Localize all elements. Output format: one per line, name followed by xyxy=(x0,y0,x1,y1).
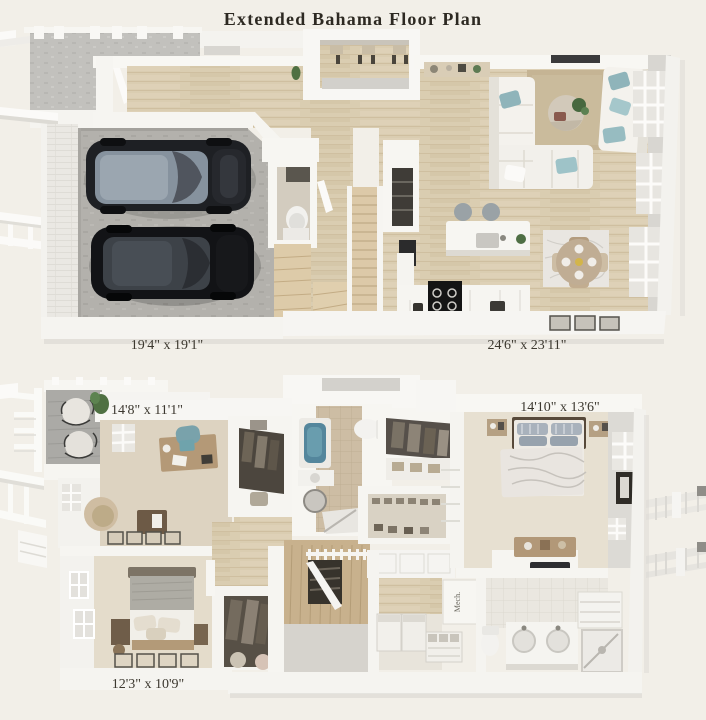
svg-text:24'6" x 23'11": 24'6" x 23'11" xyxy=(488,338,567,353)
svg-text:19'4" x 19'1": 19'4" x 19'1" xyxy=(131,338,203,353)
svg-text:Extended Bahama Floor Plan: Extended Bahama Floor Plan xyxy=(224,9,482,29)
svg-text:12'3" x 10'9": 12'3" x 10'9" xyxy=(112,677,184,692)
svg-text:14'8" x 11'1": 14'8" x 11'1" xyxy=(111,403,183,418)
svg-text:14'10" x 13'6": 14'10" x 13'6" xyxy=(520,400,599,415)
svg-text:Mech.: Mech. xyxy=(453,592,462,612)
